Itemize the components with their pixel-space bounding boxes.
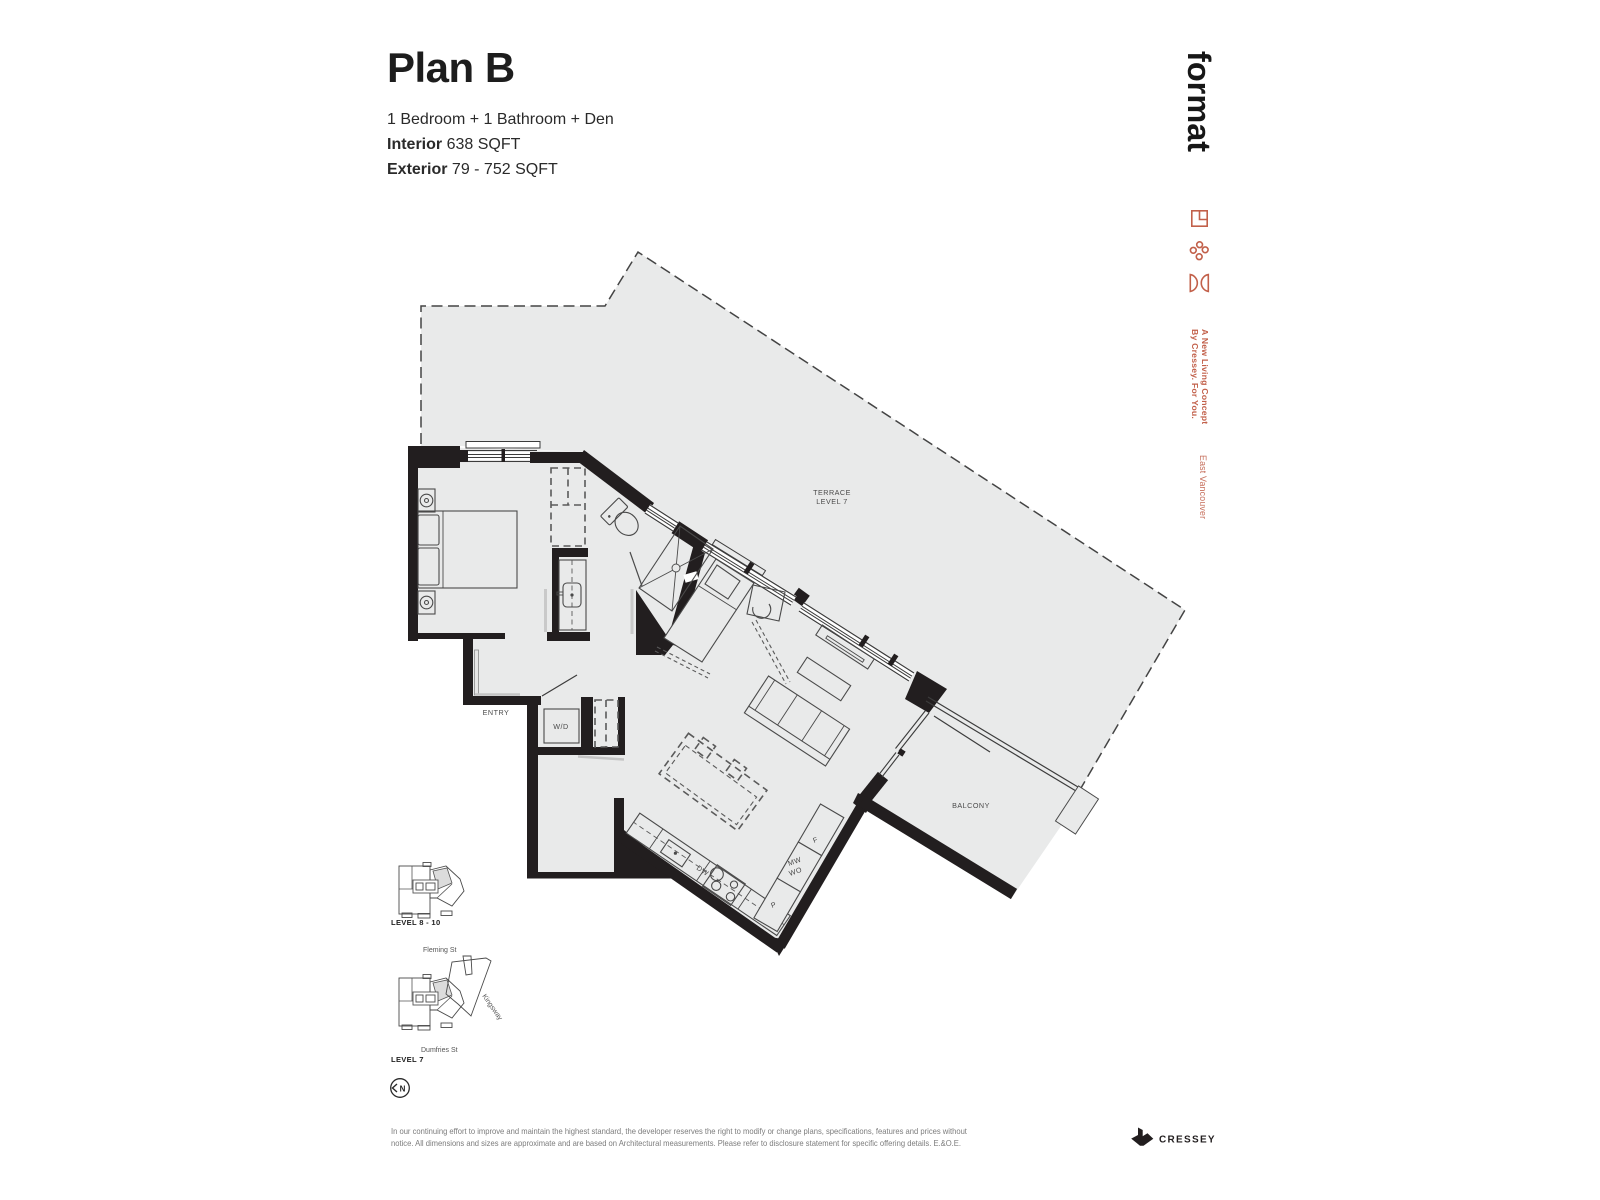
svg-text:BALCONY: BALCONY xyxy=(952,801,990,810)
svg-text:W/D: W/D xyxy=(553,722,568,731)
svg-text:Kingsway: Kingsway xyxy=(480,993,503,1022)
svg-text:CRESSEY: CRESSEY xyxy=(1159,1135,1216,1146)
svg-text:LEVEL 7: LEVEL 7 xyxy=(816,497,848,506)
svg-text:ENTRY: ENTRY xyxy=(483,708,510,717)
svg-text:Fleming St: Fleming St xyxy=(423,947,457,954)
svg-text:N: N xyxy=(400,1085,406,1094)
svg-text:LEVEL 8 - 10: LEVEL 8 - 10 xyxy=(391,918,440,927)
svg-text:TERRACE: TERRACE xyxy=(813,488,851,497)
svg-text:LEVEL 7: LEVEL 7 xyxy=(391,1055,424,1064)
svg-text:Dumfries St: Dumfries St xyxy=(421,1047,458,1054)
